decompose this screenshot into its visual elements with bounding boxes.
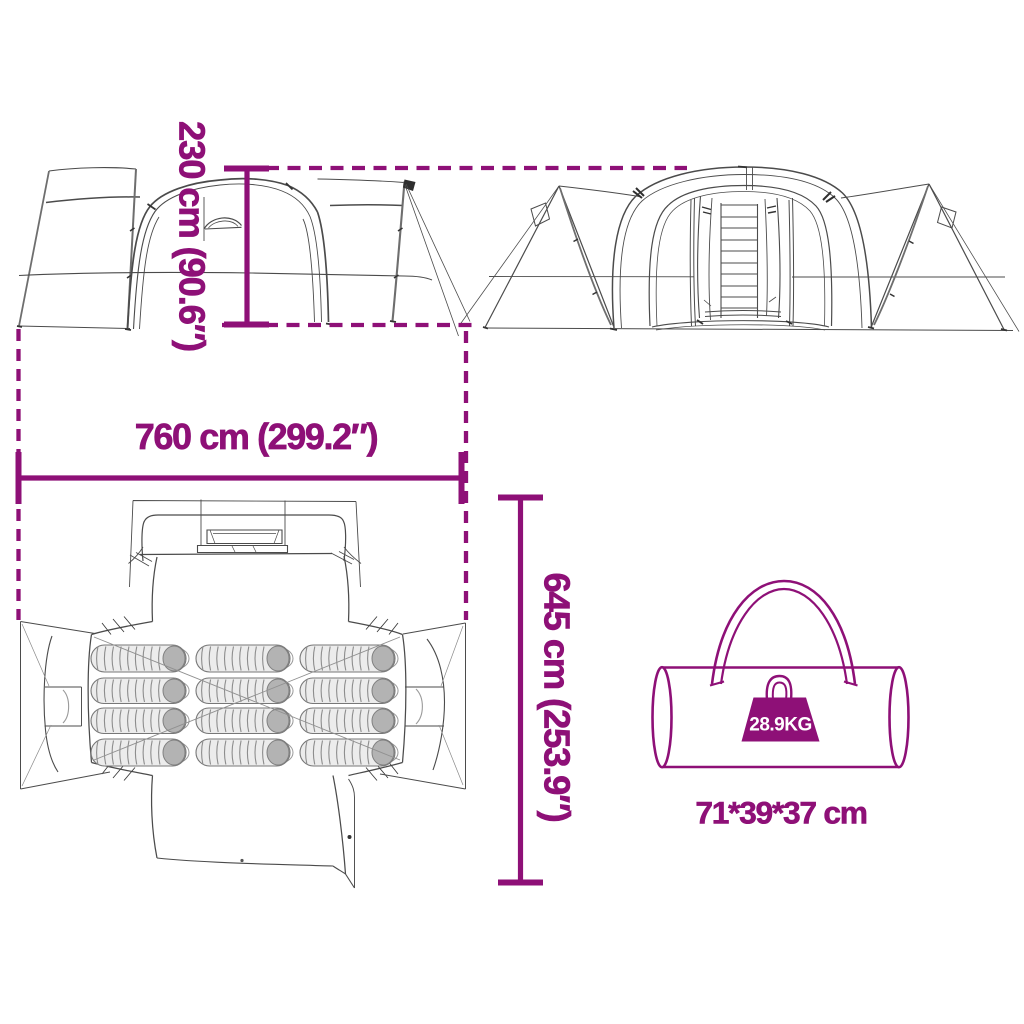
svg-text:760 cm (299.2″): 760 cm (299.2″) [135, 416, 378, 457]
svg-text:71*39*37 cm: 71*39*37 cm [695, 795, 866, 831]
svg-text:645 cm (253.9″): 645 cm (253.9″) [537, 572, 578, 821]
svg-text:230 cm (90.6″): 230 cm (90.6″) [172, 121, 213, 351]
svg-text:28.9KG: 28.9KG [749, 715, 811, 736]
